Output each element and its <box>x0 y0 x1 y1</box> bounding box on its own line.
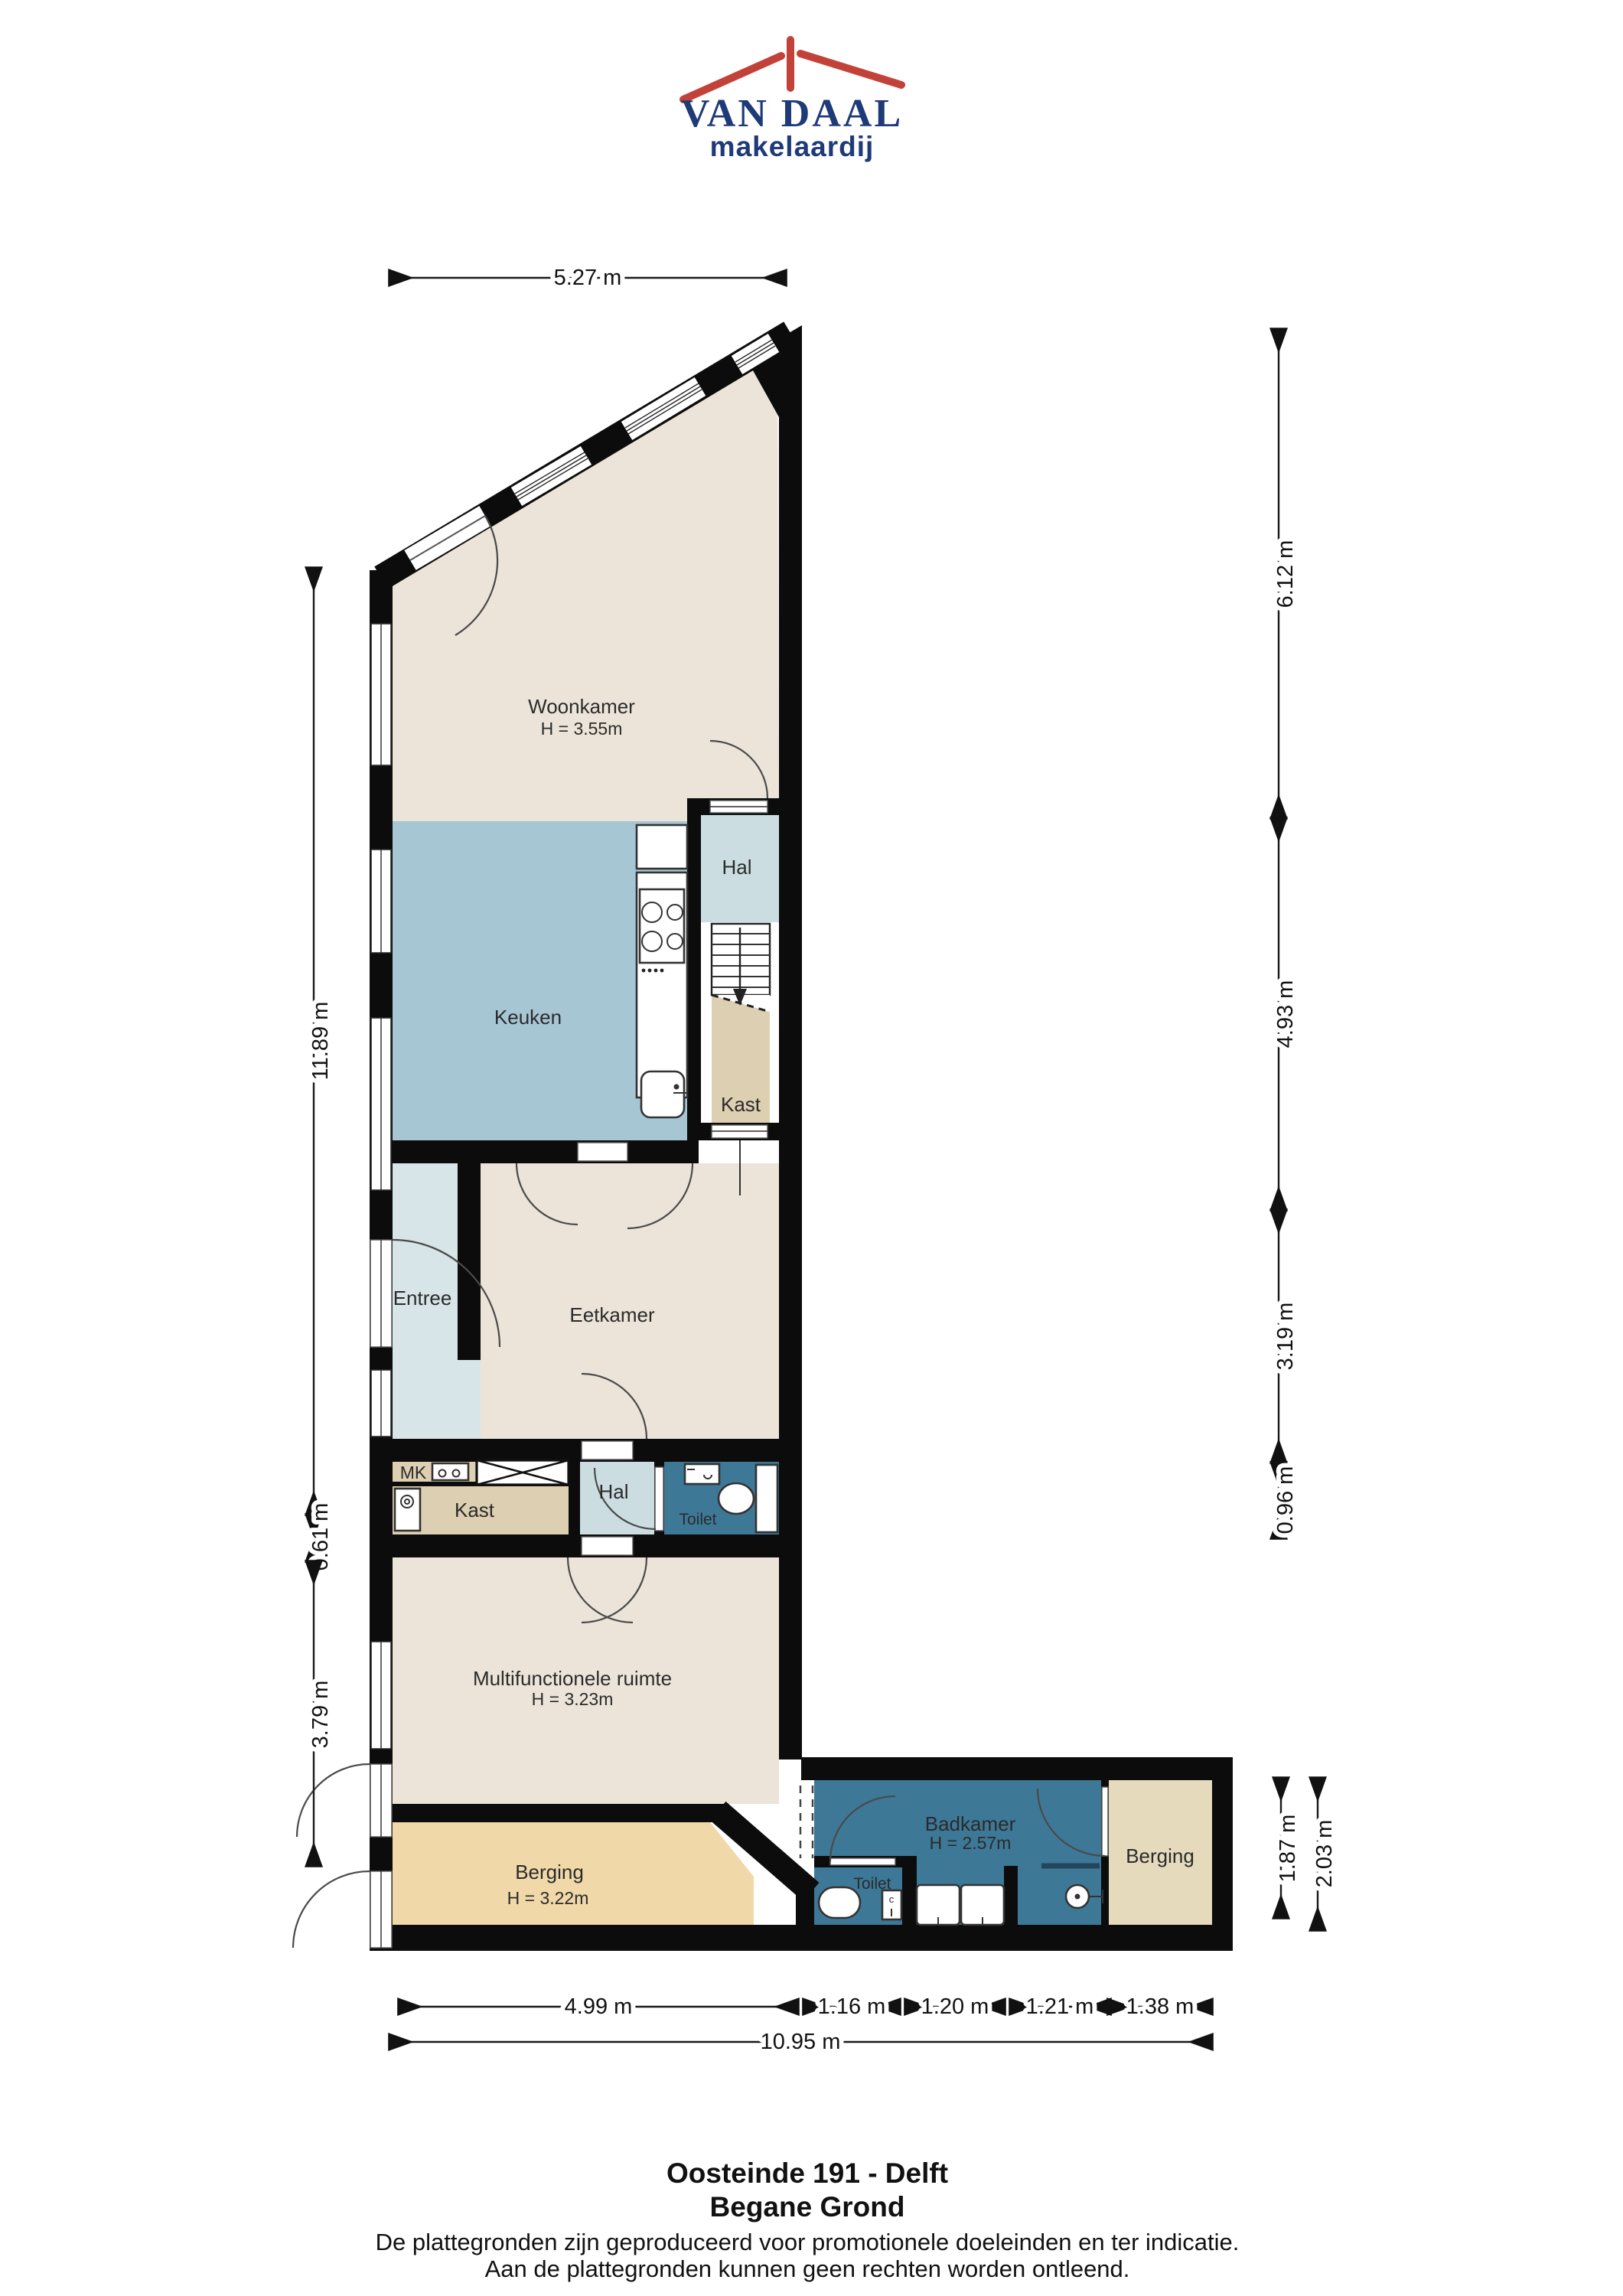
label-entree: Entree <box>393 1287 452 1309</box>
door-multifunctionele-exterior <box>297 1764 392 1837</box>
label-eetkamer: Eetkamer <box>569 1303 655 1326</box>
shaft-icon <box>477 1460 569 1485</box>
label-berging-rechts: Berging <box>1126 1844 1194 1867</box>
label-berging-links-height: H = 3.22m <box>507 1888 589 1908</box>
label-badkamer: Badkamer <box>925 1812 1016 1835</box>
label-hal-strip: Hal <box>598 1480 628 1503</box>
label-woonkamer: Woonkamer <box>528 695 635 718</box>
label-multifunctionele-height: H = 3.23m <box>532 1689 614 1709</box>
kitchen-sink-icon <box>641 1071 687 1117</box>
footer-disclaimer-1: De plattegronden zijn geproduceerd voor … <box>376 2229 1240 2255</box>
svg-text:c: c <box>889 1893 895 1905</box>
dim-bottom-1: 1.16 m <box>818 1994 886 2019</box>
dim-bottom-4: 1.38 m <box>1126 1994 1194 2019</box>
passage-opening <box>799 1786 814 1858</box>
label-keuken: Keuken <box>494 1006 562 1029</box>
footer-title: Oosteinde 191 - Delft <box>666 2157 948 2189</box>
footer-subtitle: Begane Grond <box>710 2191 905 2223</box>
dim-right-0: 6.12 m <box>1273 540 1298 608</box>
dim-right-2: 3.19 m <box>1273 1303 1298 1371</box>
dim-top: 5.27 m <box>554 266 622 290</box>
label-hal-boven: Hal <box>722 856 751 879</box>
washer-dryer-icons <box>917 1885 1004 1925</box>
dim-bottom-3: 1.21 m <box>1026 1994 1094 2019</box>
footer: Oosteinde 191 - Delft Begane Grond De pl… <box>376 2157 1240 2282</box>
dim-bottom-0: 4.99 m <box>565 1994 633 2019</box>
label-mk: MK <box>400 1463 427 1482</box>
label-badkamer-height: H = 2.57m <box>930 1833 1012 1853</box>
logo-roof-icon <box>683 40 901 99</box>
label-kast-boven: Kast <box>721 1093 761 1116</box>
dim-right-1: 4.93 m <box>1273 980 1298 1049</box>
label-kast-strip: Kast <box>455 1499 495 1521</box>
room-eetkamer <box>481 1163 779 1439</box>
kitchen-cabinet-icon <box>637 825 687 869</box>
dim-bottom-2: 1.20 m <box>921 1994 989 2019</box>
logo-name: VAN DAAL <box>681 92 903 135</box>
logo-tagline: makelaardij <box>710 131 875 162</box>
dim-wing-1: 2.03 m <box>1312 1820 1337 1888</box>
dim-bottom-total: 10.95 m <box>761 2030 841 2054</box>
boiler-icon: c <box>882 1890 901 1919</box>
dim-wing-0: 1.87 m <box>1276 1815 1300 1883</box>
dim-left-0: 11.89 m <box>308 1002 333 1081</box>
floorplan-drawing: VAN DAAL makelaardij <box>0 0 1623 2296</box>
footer-disclaimer-2: Aan de plattegronden kunnen geen rechten… <box>485 2255 1130 2282</box>
label-multifunctionele: Multifunctionele ruimte <box>473 1667 672 1690</box>
floorplan-page: VAN DAAL makelaardij <box>0 0 1623 2296</box>
vandaal-logo: VAN DAAL makelaardij <box>681 40 903 162</box>
dim-left-1: 0.61 m <box>308 1503 333 1571</box>
toilet-strip-sink-icon <box>685 1464 719 1484</box>
washing-machine-icon <box>395 1489 420 1531</box>
label-toilet-strip: Toilet <box>679 1511 716 1528</box>
label-woonkamer-height: H = 3.55m <box>541 719 623 739</box>
label-berging-links: Berging <box>515 1861 584 1883</box>
label-toilet-wing: Toilet <box>853 1875 891 1893</box>
room-woonkamer <box>393 346 779 821</box>
dim-right-3: 0.96 m <box>1273 1466 1298 1534</box>
door-berging-links-exterior <box>293 1871 392 1948</box>
mk-sink-icon <box>432 1463 468 1480</box>
dim-left-2: 3.79 m <box>308 1681 333 1749</box>
stove-icon <box>640 889 684 972</box>
